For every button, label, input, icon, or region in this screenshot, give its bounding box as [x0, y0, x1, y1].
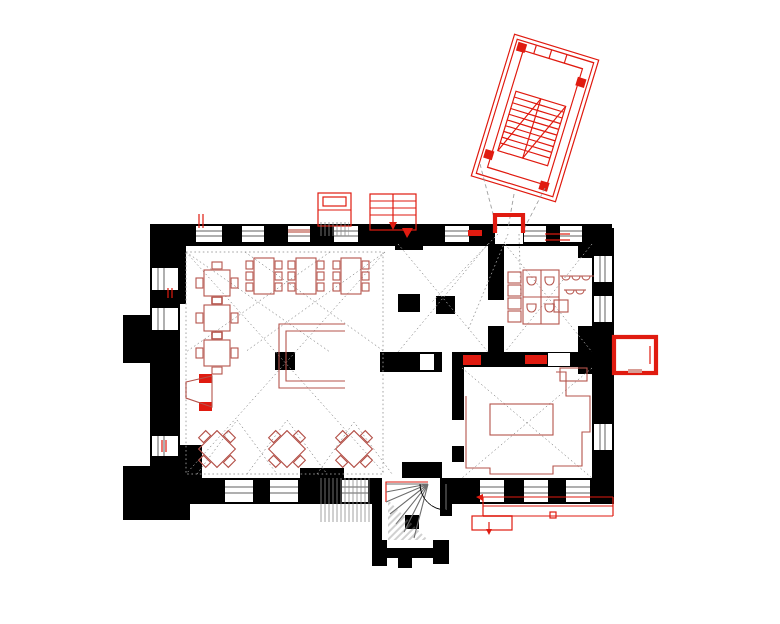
rect-table-6-chairs	[288, 258, 324, 294]
southeast-room-red	[466, 368, 590, 474]
pillar	[398, 294, 420, 312]
stair-tower	[471, 34, 598, 201]
pillar	[275, 352, 295, 370]
square-table-4-chairs	[196, 332, 238, 374]
rect-table-6-chairs	[333, 258, 369, 294]
pillar	[436, 296, 455, 314]
east-new-box	[614, 337, 656, 373]
external-steps	[320, 478, 372, 522]
floor-plan-canvas	[0, 0, 780, 624]
entrance-vestibule	[320, 478, 467, 568]
rect-table-6-chairs	[246, 258, 282, 294]
new-opening	[525, 355, 547, 364]
external-porch	[318, 193, 351, 236]
sinks	[562, 276, 590, 280]
west-buttress	[123, 315, 152, 363]
square-table-4-chairs	[196, 262, 238, 304]
floor-plan-page	[0, 0, 780, 624]
tower-connection-dashes	[480, 164, 545, 229]
stair-treads	[498, 91, 566, 165]
new-opening	[463, 355, 481, 365]
